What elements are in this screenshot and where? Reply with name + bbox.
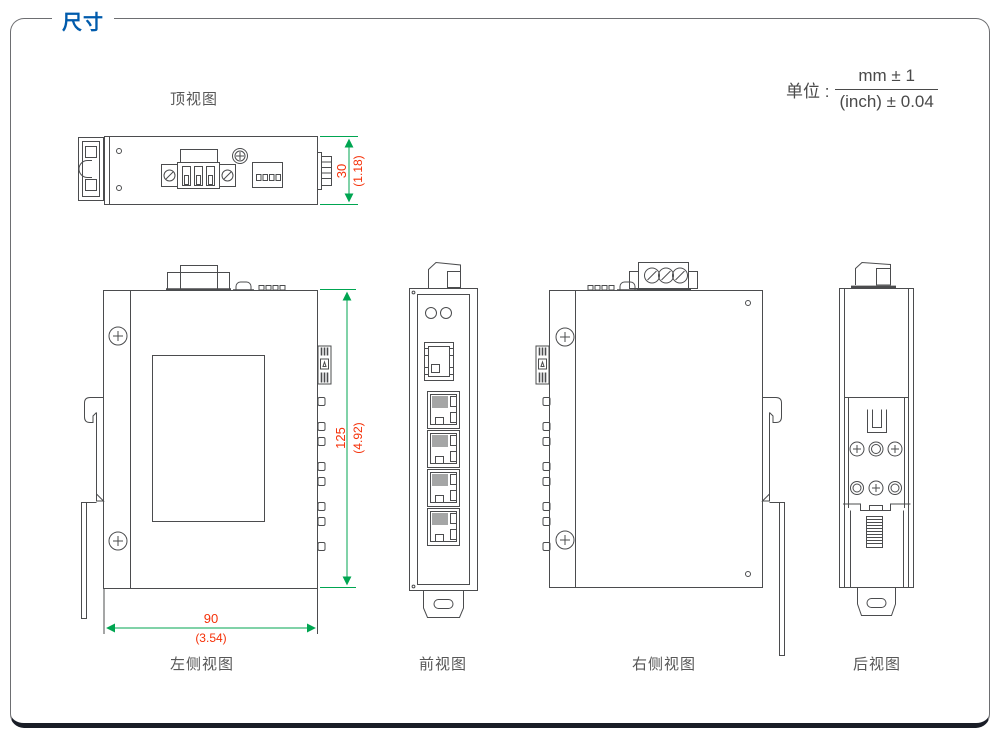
terminal-screw-icon [673, 268, 688, 283]
mounting-tab-icon [858, 588, 896, 616]
unit-mm: mm ± 1 [835, 66, 937, 90]
dim-height-inch: (1.18) [351, 155, 365, 186]
top-view-drawing: 30 (1.18) [79, 137, 366, 205]
rear-view-drawing [840, 263, 914, 616]
port-latch-icon [318, 463, 325, 471]
terminal-screw-icon [164, 170, 175, 181]
phillips-screw-icon [850, 442, 864, 456]
port-latch-icon [318, 423, 325, 431]
port-latch-icon [543, 463, 550, 471]
grounding-screw-icon [233, 149, 248, 164]
din-clip-top-icon [79, 138, 104, 201]
led-indicator-icon [426, 308, 437, 319]
reset-button-side-icon [233, 282, 254, 290]
port-latch-icon [318, 503, 325, 511]
left-view-body [104, 291, 318, 589]
phillips-screw-icon [109, 327, 127, 345]
port-latch-icon [543, 518, 550, 526]
port-latch-icon [318, 518, 325, 526]
terminal-block-side-icon [166, 266, 231, 291]
terminal-screw-icon [659, 268, 674, 283]
vent-hole-icon [746, 301, 751, 306]
left-side-view-drawing: 125 (4.92) 90 (3.54) [82, 266, 366, 646]
top-view-body [105, 137, 318, 205]
right-view-label: 右侧视图 [594, 653, 734, 674]
dim-height-mm: 30 [334, 164, 349, 178]
phillips-screw-icon [888, 442, 902, 456]
port-latch-icon [543, 543, 550, 551]
port-latch-icon [318, 543, 325, 551]
dip-switch-side-icon [588, 286, 614, 291]
unit-prefix: 单位 : [786, 77, 829, 102]
panel-screw-dot [412, 585, 415, 588]
port-latch-icon [543, 398, 550, 406]
vent-hole-icon [117, 149, 122, 154]
din-rail-bracket-icon [82, 398, 104, 619]
screw-hole-icon [851, 482, 864, 495]
phillips-screw-icon [869, 481, 883, 495]
port-latch-icon [318, 398, 325, 406]
port-latch-icon [318, 438, 325, 446]
right-view-body [550, 291, 763, 588]
dim-height-30: 30 (1.18) [320, 137, 365, 205]
front-view-label: 前视图 [373, 653, 513, 674]
dip-switch-icon [253, 163, 283, 188]
port-latch-icon [543, 423, 550, 431]
mounting-tab-icon [424, 591, 464, 618]
rj45-port-icon [428, 392, 460, 429]
left-view-label: 左侧视图 [132, 653, 272, 674]
terminal-block-top-icon [162, 150, 236, 189]
screw-hole-icon [869, 442, 883, 456]
rear-view-label: 后视图 [807, 653, 947, 674]
spring-anchor [870, 506, 883, 511]
din-rail-bracket-icon [763, 398, 785, 656]
vent-hole-icon [746, 572, 751, 577]
front-view-drawing [410, 263, 478, 618]
spring-icon [867, 517, 883, 548]
dim-body-height-125: 125 (4.92) [320, 290, 365, 588]
unit-fraction: mm ± 1 (inch) ± 0.04 [835, 66, 937, 112]
dim-width-inch: (3.54) [195, 631, 226, 645]
sfp-cage-side-icon [536, 346, 549, 384]
dim-width-90: 90 (3.54) [104, 589, 318, 645]
led-indicator-icon [441, 308, 452, 319]
port-latch-icon [543, 478, 550, 486]
terminal-screw-icon [222, 170, 233, 181]
phillips-screw-icon [556, 328, 574, 346]
din-clip-tab-icon [429, 263, 461, 289]
phillips-screw-icon [556, 531, 574, 549]
section-title: 尺寸 [52, 6, 114, 35]
port-latch-icon [543, 503, 550, 511]
slide-bracket-line [843, 504, 911, 511]
rear-connector-top-icon [318, 153, 332, 190]
port-latch-icon [543, 438, 550, 446]
right-side-view-drawing [536, 263, 785, 656]
screw-hole-icon [889, 482, 902, 495]
phillips-screw-icon [109, 532, 127, 550]
dip-switch-side-icon [259, 286, 285, 291]
dim-body-height-inch: (4.92) [351, 422, 365, 453]
rj45-port-icon [428, 431, 460, 468]
sfp-cage-side-icon [318, 346, 331, 384]
top-view-label: 顶视图 [124, 88, 264, 109]
dim-width-mm: 90 [204, 611, 218, 626]
unit-annotation: 单位 : mm ± 1 (inch) ± 0.04 [786, 66, 938, 112]
vent-hole-icon [117, 186, 122, 191]
dimension-drawing-page: 尺寸 单位 : mm ± 1 (inch) ± 0.04 顶视图 左侧视图 前视… [0, 0, 1000, 733]
din-slot-icon [868, 410, 887, 433]
din-clip-tab-icon [851, 263, 896, 287]
port-latch-icon [318, 478, 325, 486]
dim-body-height-mm: 125 [333, 427, 348, 449]
unit-inch: (inch) ± 0.04 [835, 90, 937, 112]
rj45-port-icon [428, 509, 460, 546]
label-area [153, 356, 265, 522]
terminal-screw-icon [645, 268, 660, 283]
panel-screw-dot [412, 291, 415, 294]
sfp-port-icon [425, 343, 454, 381]
rj45-port-icon [428, 470, 460, 507]
